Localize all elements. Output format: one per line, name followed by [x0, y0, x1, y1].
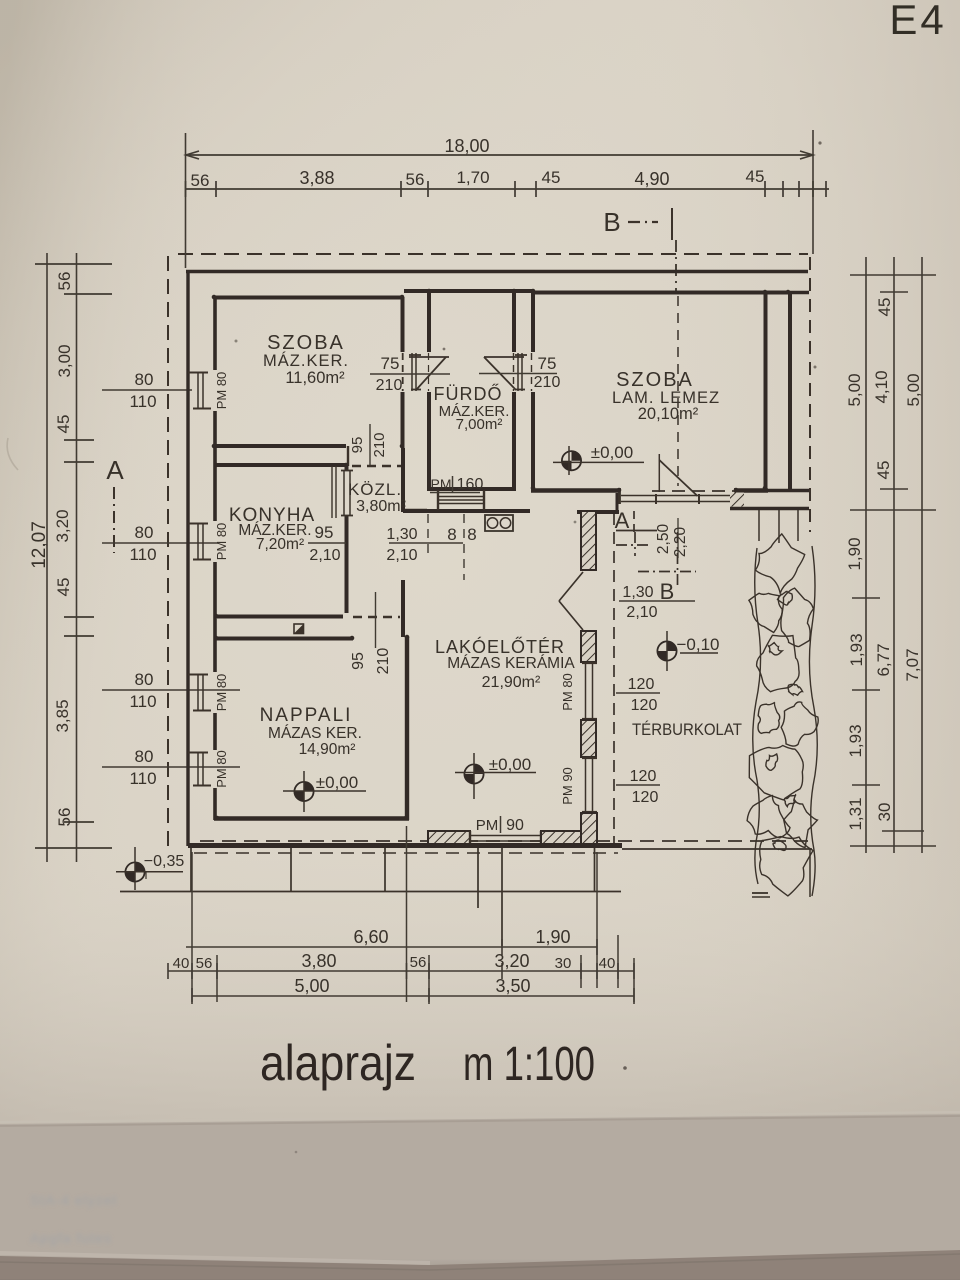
svg-text:75: 75: [381, 354, 400, 373]
svg-text:2,10: 2,10: [386, 547, 417, 564]
svg-text:56: 56: [191, 171, 210, 190]
svg-text:56: 56: [55, 808, 74, 827]
svg-text:30: 30: [875, 803, 894, 822]
svg-text:NAPPALI: NAPPALI: [260, 705, 353, 726]
svg-text:alaprajz: alaprajz: [260, 1035, 416, 1091]
svg-text:56: 56: [406, 170, 425, 189]
svg-text:Apgfa futes: Apgfa futes: [30, 1230, 112, 1246]
svg-text:A: A: [106, 455, 124, 485]
svg-text:3,20: 3,20: [494, 951, 529, 971]
svg-text:5,00: 5,00: [294, 976, 329, 996]
svg-text:210: 210: [375, 648, 392, 675]
svg-text:PM: PM: [431, 476, 452, 492]
svg-text:45: 45: [54, 415, 73, 434]
svg-text:160: 160: [457, 476, 484, 493]
svg-text:56: 56: [196, 955, 213, 972]
svg-text:3,00: 3,00: [55, 344, 74, 377]
svg-text:75: 75: [538, 354, 557, 373]
svg-text:4,90: 4,90: [634, 169, 669, 189]
svg-text:PM 80: PM 80: [560, 673, 575, 711]
svg-text:210: 210: [534, 374, 561, 391]
svg-text:MÁZ.KER.: MÁZ.KER.: [263, 351, 349, 370]
svg-text:3,80m²: 3,80m²: [356, 498, 406, 515]
svg-text:30: 30: [555, 955, 572, 972]
svg-text:PM 80: PM 80: [214, 674, 229, 712]
svg-text:±0,00: ±0,00: [316, 773, 358, 792]
svg-text:80: 80: [135, 523, 154, 542]
svg-text:1,31: 1,31: [846, 797, 865, 830]
svg-text:40: 40: [599, 955, 616, 972]
svg-text:TÉRBURKOLAT: TÉRBURKOLAT: [632, 720, 742, 739]
svg-text:45: 45: [542, 168, 561, 187]
svg-text:45: 45: [875, 298, 894, 317]
svg-text:110: 110: [129, 769, 156, 788]
svg-text:1,30: 1,30: [386, 526, 417, 543]
svg-text:5,00: 5,00: [904, 373, 923, 406]
svg-text:E4: E4: [889, 0, 946, 43]
svg-text:2,50: 2,50: [655, 524, 672, 555]
svg-text:80: 80: [135, 670, 154, 689]
svg-text:KÖZL.: KÖZL.: [348, 480, 402, 499]
svg-text:1,90: 1,90: [535, 927, 570, 947]
svg-text:7,00m²: 7,00m²: [456, 416, 503, 433]
svg-text:6,60: 6,60: [353, 927, 388, 947]
svg-text:45: 45: [746, 167, 765, 186]
svg-text:PM 80: PM 80: [214, 523, 229, 561]
svg-text:210: 210: [376, 377, 403, 394]
svg-text:18,00: 18,00: [444, 136, 489, 156]
svg-text:95: 95: [349, 437, 366, 454]
svg-text:PM 80: PM 80: [214, 372, 229, 410]
svg-text:14,90m²: 14,90m²: [299, 741, 356, 758]
svg-text:MÁZAS KERÁMIA: MÁZAS KERÁMIA: [447, 655, 575, 672]
svg-text:210: 210: [371, 432, 388, 457]
svg-text:MÁZAS KER.: MÁZAS KER.: [268, 725, 362, 742]
svg-text:80: 80: [135, 747, 154, 766]
svg-text:±0,00: ±0,00: [489, 755, 531, 774]
svg-text:3,20: 3,20: [53, 509, 72, 542]
svg-text:56: 56: [55, 272, 74, 291]
svg-text:2,10: 2,10: [309, 547, 340, 564]
svg-text:LAKÓELŐTÉR: LAKÓELŐTÉR: [435, 636, 565, 657]
svg-text:56: 56: [410, 954, 427, 971]
svg-text:PM 80: PM 80: [214, 750, 229, 788]
svg-text:1,93: 1,93: [847, 633, 866, 666]
svg-text:95: 95: [350, 652, 367, 670]
svg-text:−0,10: −0,10: [676, 635, 719, 654]
svg-text:PM 90: PM 90: [560, 767, 575, 805]
svg-text:3,80: 3,80: [301, 951, 336, 971]
svg-text:m 1:100: m 1:100: [463, 1038, 595, 1091]
svg-text:120: 120: [631, 697, 658, 714]
svg-text:120: 120: [632, 789, 659, 806]
svg-text:80: 80: [135, 370, 154, 389]
svg-text:45: 45: [54, 578, 73, 597]
svg-text:2,20: 2,20: [672, 527, 689, 558]
svg-text:7,20m²: 7,20m²: [256, 536, 304, 553]
svg-text:21,90m²: 21,90m²: [482, 674, 541, 691]
svg-text:11,60m²: 11,60m²: [285, 369, 345, 387]
svg-text:SZOBA: SZOBA: [616, 369, 694, 391]
svg-text:45: 45: [874, 461, 893, 480]
svg-text:6,77: 6,77: [874, 643, 893, 676]
svg-text:95: 95: [315, 523, 334, 542]
svg-text:SZOBA: SZOBA: [267, 332, 345, 354]
svg-text:3,50: 3,50: [495, 976, 530, 996]
svg-text:5,00: 5,00: [845, 373, 864, 406]
svg-text:8: 8: [447, 525, 456, 544]
svg-text:1,30: 1,30: [622, 584, 653, 601]
svg-text:1,90: 1,90: [845, 537, 864, 570]
svg-text:120: 120: [630, 768, 657, 785]
svg-text:120: 120: [628, 676, 655, 693]
svg-text:7,07: 7,07: [903, 648, 922, 681]
svg-text:110: 110: [129, 392, 156, 411]
svg-text:PM: PM: [476, 817, 499, 834]
svg-text:3,88: 3,88: [299, 168, 334, 188]
svg-text:90: 90: [506, 817, 524, 834]
svg-text:1,93: 1,93: [846, 724, 865, 757]
svg-text:B: B: [603, 207, 620, 237]
svg-text:12,07: 12,07: [29, 521, 50, 569]
svg-text:StA-4 elyzet: StA-4 elyzet: [30, 1192, 117, 1208]
svg-text:2,10: 2,10: [626, 604, 657, 621]
svg-text:FÜRDŐ: FÜRDŐ: [434, 383, 503, 404]
svg-text:110: 110: [129, 692, 156, 711]
svg-text:20,10m²: 20,10m²: [638, 405, 699, 423]
svg-text:−0,35: −0,35: [144, 853, 185, 870]
svg-text:110: 110: [129, 545, 156, 564]
svg-text:8: 8: [467, 525, 476, 544]
svg-text:1,70: 1,70: [456, 168, 489, 187]
svg-text:4,10: 4,10: [872, 370, 891, 403]
svg-text:3,85: 3,85: [53, 699, 72, 732]
svg-text:40: 40: [173, 955, 190, 972]
svg-text:±0,00: ±0,00: [591, 443, 633, 462]
